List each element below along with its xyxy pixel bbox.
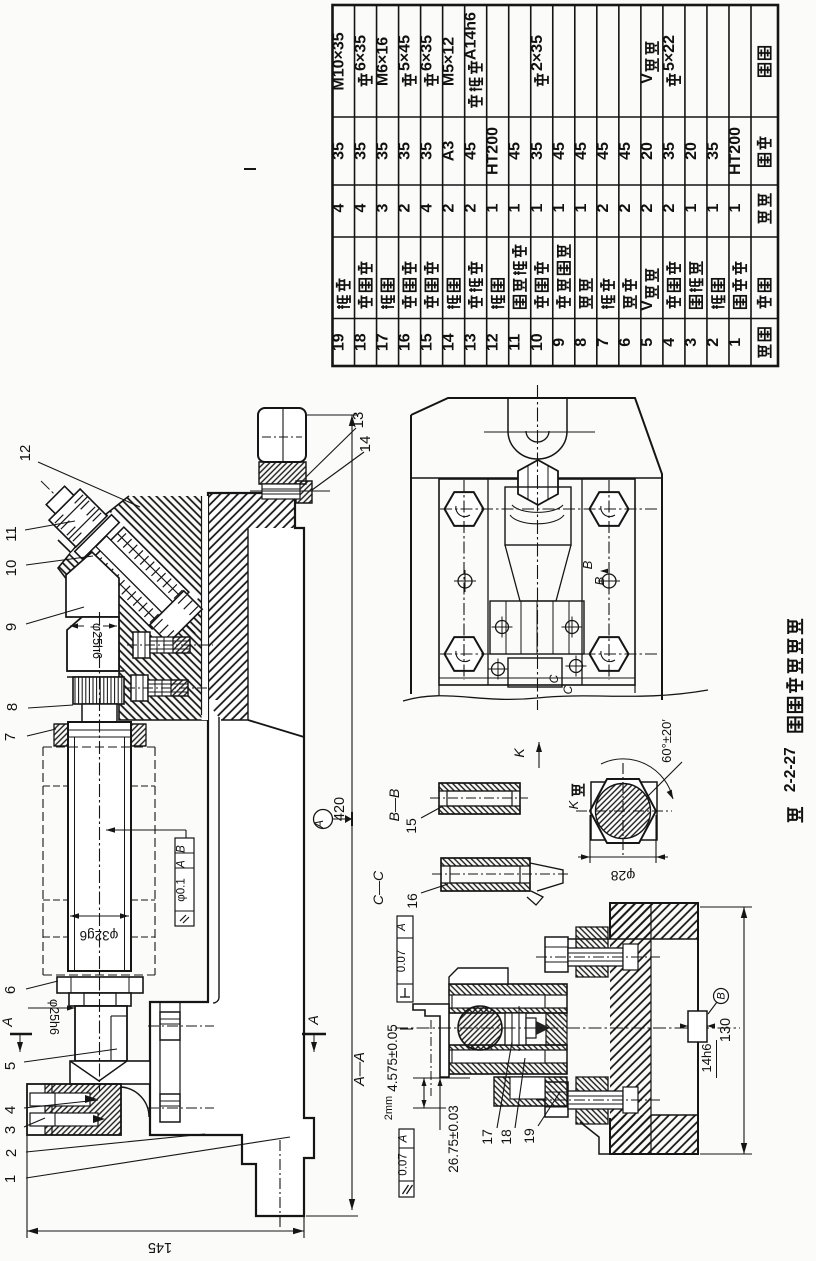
svg-text:14h6: 14h6 [699, 1044, 714, 1073]
svg-text:45: 45 [551, 142, 568, 160]
svg-text:16: 16 [404, 893, 420, 909]
svg-text:19: 19 [521, 1128, 537, 1144]
svg-text:φ28: φ28 [610, 868, 635, 884]
svg-text:5×22: 5×22 [661, 35, 678, 71]
svg-text:2: 2 [397, 203, 414, 212]
svg-text:35: 35 [705, 142, 722, 160]
svg-text:17: 17 [479, 1129, 495, 1145]
svg-text:11: 11 [3, 526, 20, 542]
svg-text:45: 45 [595, 142, 612, 160]
svg-text:A: A [398, 1134, 410, 1143]
svg-text:1: 1 [529, 203, 546, 212]
svg-text:1: 1 [2, 1175, 19, 1183]
svg-text:1: 1 [485, 203, 502, 212]
svg-text:2: 2 [661, 203, 678, 212]
svg-text:K: K [566, 799, 581, 809]
svg-text:1: 1 [727, 203, 744, 212]
svg-text:5: 5 [2, 1062, 19, 1070]
svg-text:A—A: A—A [352, 1052, 368, 1087]
svg-text:2: 2 [3, 1149, 20, 1157]
svg-text:130: 130 [718, 1018, 734, 1042]
svg-text:A: A [396, 923, 408, 932]
svg-text:7: 7 [2, 733, 19, 741]
svg-text:35: 35 [419, 142, 436, 160]
svg-text:8: 8 [573, 338, 590, 347]
svg-text:φ0.1: φ0.1 [176, 878, 188, 901]
svg-text:A: A [0, 1017, 15, 1027]
svg-text:14: 14 [441, 333, 458, 351]
svg-text:3: 3 [2, 1126, 19, 1134]
svg-text:B: B [580, 560, 595, 569]
svg-text:8: 8 [4, 703, 21, 711]
svg-text:9: 9 [551, 338, 568, 347]
svg-text:2: 2 [705, 338, 722, 347]
svg-text:17: 17 [375, 333, 392, 351]
svg-text:0.07: 0.07 [396, 950, 408, 972]
svg-text:2: 2 [639, 203, 656, 212]
svg-text:4: 4 [2, 1106, 19, 1114]
svg-text:1: 1 [573, 203, 590, 212]
svg-text:1: 1 [727, 338, 744, 347]
svg-text:26.75±0.03: 26.75±0.03 [446, 1105, 461, 1172]
svg-text:4: 4 [331, 203, 348, 212]
svg-text:5×45: 5×45 [397, 35, 414, 71]
svg-text:16: 16 [397, 333, 414, 351]
svg-text:HT200: HT200 [727, 127, 744, 175]
svg-text:2×35: 2×35 [529, 35, 546, 71]
svg-text:1: 1 [507, 203, 524, 212]
svg-text:M6×16: M6×16 [375, 37, 392, 86]
svg-text:A: A [305, 1015, 321, 1025]
svg-text:11: 11 [507, 334, 524, 351]
svg-text:45: 45 [463, 142, 480, 160]
svg-text:18: 18 [353, 333, 370, 351]
svg-text:B: B [592, 576, 607, 585]
svg-text:15: 15 [419, 333, 436, 351]
svg-text:3: 3 [683, 338, 700, 347]
svg-text:6×35: 6×35 [353, 35, 370, 71]
svg-text:4.575±0.05: 4.575±0.05 [385, 1024, 400, 1091]
svg-text:45: 45 [573, 142, 590, 160]
svg-text:35: 35 [375, 142, 392, 160]
svg-text:60°±20′: 60°±20′ [659, 719, 674, 763]
svg-text:7: 7 [595, 338, 612, 347]
svg-text:V: V [639, 73, 656, 84]
svg-text:2: 2 [595, 203, 612, 212]
svg-text:V: V [639, 300, 656, 311]
svg-text:10: 10 [3, 560, 20, 577]
svg-text:K: K [511, 748, 527, 758]
svg-text:2: 2 [463, 203, 480, 212]
svg-text:5: 5 [639, 338, 656, 347]
svg-text:A14h6: A14h6 [463, 12, 480, 60]
svg-text:45: 45 [617, 142, 634, 160]
svg-text:4: 4 [661, 338, 678, 347]
svg-text:4: 4 [419, 203, 436, 212]
svg-text:C—C: C—C [370, 870, 386, 905]
svg-text:B—B: B—B [386, 789, 402, 822]
svg-text:B: B [176, 845, 188, 853]
svg-text:2-2-27: 2-2-27 [782, 747, 799, 792]
svg-text:12: 12 [17, 445, 34, 462]
svg-text:C: C [547, 674, 561, 683]
svg-text:19: 19 [331, 333, 348, 351]
svg-text:35: 35 [529, 142, 546, 160]
svg-text:1: 1 [551, 203, 568, 212]
svg-text:0.07: 0.07 [398, 1153, 410, 1175]
svg-text:M5×12: M5×12 [441, 37, 458, 86]
svg-text:20: 20 [683, 142, 700, 160]
svg-text:1: 1 [705, 203, 722, 212]
svg-text:10: 10 [529, 333, 546, 351]
svg-text:14: 14 [357, 436, 374, 453]
svg-text:35: 35 [353, 142, 370, 160]
svg-text:20: 20 [639, 142, 656, 160]
svg-text:φ25h6: φ25h6 [90, 623, 104, 659]
svg-text:2: 2 [617, 203, 634, 212]
svg-text:A: A [176, 860, 188, 869]
svg-text:M10×35: M10×35 [331, 32, 348, 90]
svg-text:145: 145 [148, 1239, 172, 1255]
svg-text:35: 35 [661, 142, 678, 160]
svg-text:3: 3 [375, 203, 392, 212]
svg-text:13: 13 [463, 333, 480, 351]
svg-text:15: 15 [403, 818, 419, 834]
svg-text:2mm: 2mm [383, 1096, 395, 1120]
svg-text:A: A [312, 820, 326, 829]
svg-text:6: 6 [2, 986, 19, 994]
svg-text:HT200: HT200 [485, 127, 502, 175]
svg-text:1: 1 [683, 203, 700, 212]
svg-text:C: C [561, 685, 575, 694]
svg-text:φ25h6: φ25h6 [47, 999, 61, 1035]
svg-text:35: 35 [397, 142, 414, 160]
svg-text:12: 12 [485, 333, 502, 351]
svg-text:B: B [716, 992, 728, 999]
svg-text:6×35: 6×35 [419, 35, 436, 71]
svg-text:4: 4 [353, 203, 370, 212]
svg-text:18: 18 [498, 1129, 514, 1145]
svg-text:9: 9 [3, 623, 20, 631]
svg-text:6: 6 [617, 338, 634, 347]
svg-text:A3: A3 [441, 141, 458, 162]
svg-text:35: 35 [331, 142, 348, 160]
svg-text:45: 45 [507, 142, 524, 160]
svg-text:2: 2 [441, 203, 458, 212]
